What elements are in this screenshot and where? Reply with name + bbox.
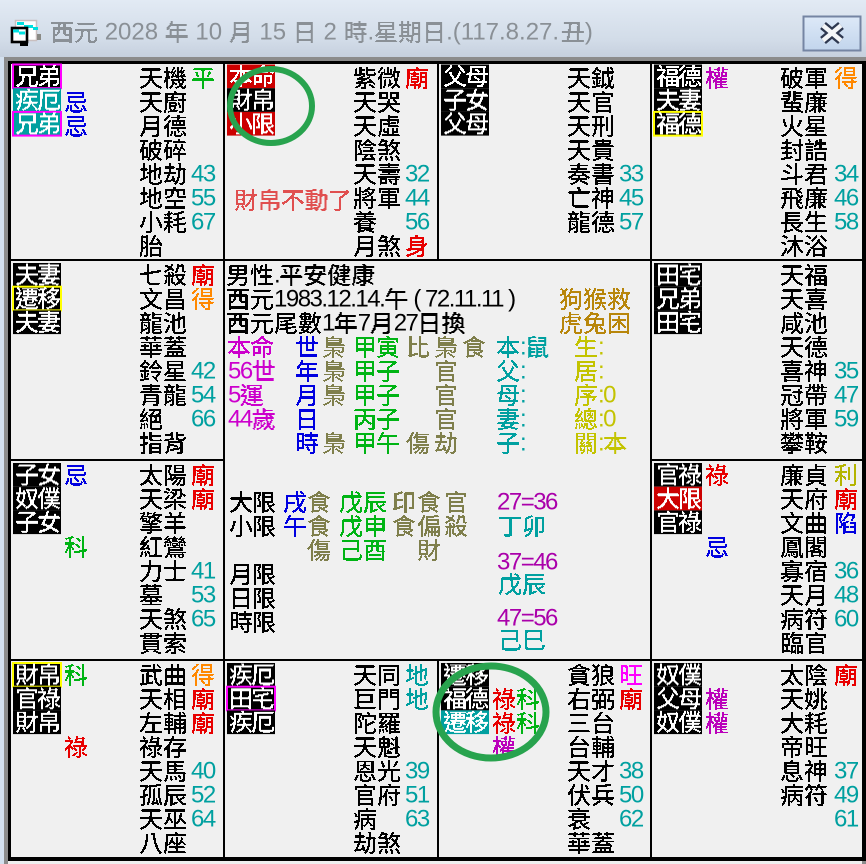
svg-text:38: 38 <box>619 758 644 785</box>
svg-text:10: 10 <box>195 19 222 46</box>
svg-text:55: 55 <box>191 185 216 212</box>
svg-text::: : <box>520 430 525 457</box>
svg-text:37: 37 <box>834 758 859 785</box>
svg-text:37=46: 37=46 <box>497 549 558 576</box>
svg-text:15: 15 <box>259 19 286 46</box>
svg-text:59: 59 <box>834 406 859 433</box>
svg-text:66: 66 <box>191 406 216 433</box>
svg-text:.(117.8.27.: .(117.8.27. <box>446 19 559 46</box>
svg-text:49: 49 <box>834 782 859 809</box>
svg-text:.: . <box>368 19 375 46</box>
svg-text:57: 57 <box>619 209 644 236</box>
svg-text:48: 48 <box>834 582 859 609</box>
svg-text:56: 56 <box>405 209 430 236</box>
svg-text:60: 60 <box>834 606 859 633</box>
svg-text:61: 61 <box>834 806 859 833</box>
svg-text::0: :0 <box>598 406 616 433</box>
svg-text:51: 51 <box>405 782 430 809</box>
svg-text:47: 47 <box>834 382 859 409</box>
svg-text:56: 56 <box>228 358 253 385</box>
svg-text:44: 44 <box>405 185 430 212</box>
svg-text:): ) <box>585 19 593 46</box>
svg-text:.: . <box>274 262 279 289</box>
svg-text:62: 62 <box>619 806 644 833</box>
svg-text:35: 35 <box>834 358 859 385</box>
svg-text:46: 46 <box>834 185 859 212</box>
svg-text:39: 39 <box>405 758 430 785</box>
svg-text:67: 67 <box>191 209 216 236</box>
svg-text:63: 63 <box>405 806 430 833</box>
svg-text:34: 34 <box>834 161 859 188</box>
svg-text:64: 64 <box>191 806 216 833</box>
svg-text:33: 33 <box>619 161 644 188</box>
svg-text:36: 36 <box>834 558 859 585</box>
svg-text::: : <box>598 334 603 361</box>
svg-text:1983.12.14.: 1983.12.14. <box>274 286 384 313</box>
svg-text::0: :0 <box>598 382 616 409</box>
svg-text:65: 65 <box>191 606 216 633</box>
svg-text:42: 42 <box>191 358 216 385</box>
svg-text:2028: 2028 <box>105 19 158 46</box>
svg-text:54: 54 <box>191 382 216 409</box>
svg-text::: : <box>520 358 525 385</box>
svg-text::: : <box>520 382 525 409</box>
svg-text::: : <box>520 406 525 433</box>
svg-text::: : <box>598 430 603 457</box>
svg-text:50: 50 <box>619 782 644 809</box>
svg-text:( 72.11.11 ): ( 72.11.11 ) <box>413 286 515 313</box>
svg-text:40: 40 <box>191 758 216 785</box>
svg-text:44: 44 <box>228 406 253 433</box>
svg-text::: : <box>598 358 603 385</box>
svg-text:47=56: 47=56 <box>497 605 558 632</box>
svg-text:2: 2 <box>324 19 337 46</box>
svg-text:52: 52 <box>191 782 216 809</box>
svg-text:41: 41 <box>191 558 216 585</box>
svg-text:45: 45 <box>619 185 644 212</box>
svg-text:58: 58 <box>834 209 859 236</box>
svg-text:43: 43 <box>191 161 216 188</box>
svg-text:27=36: 27=36 <box>497 489 558 516</box>
svg-text::: : <box>520 334 525 361</box>
svg-text:1: 1 <box>322 310 335 337</box>
svg-text:32: 32 <box>405 161 430 188</box>
svg-text:5: 5 <box>228 382 241 409</box>
svg-text:27: 27 <box>394 310 419 337</box>
svg-text:53: 53 <box>191 582 216 609</box>
svg-text:7: 7 <box>358 310 371 337</box>
